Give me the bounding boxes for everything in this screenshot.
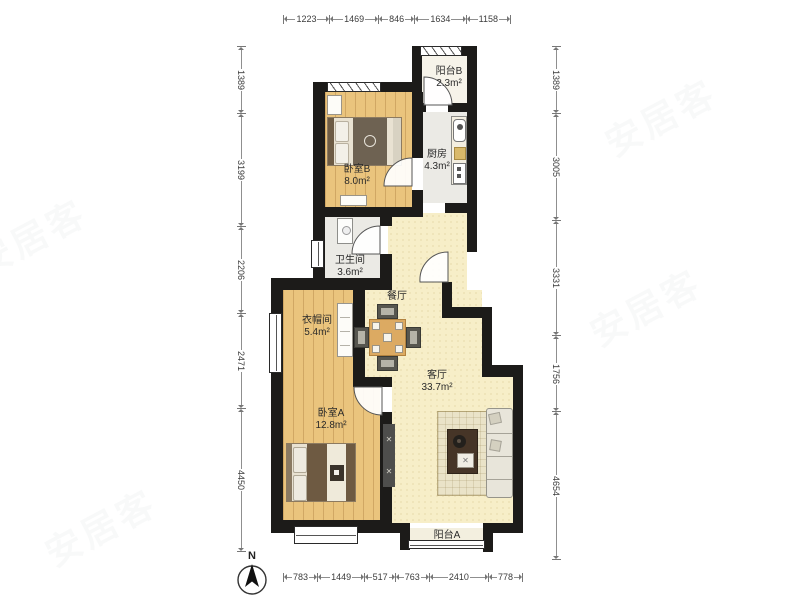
stove-burner bbox=[457, 167, 461, 171]
kitchen-stove bbox=[453, 163, 466, 184]
bathroom-basin bbox=[337, 218, 353, 244]
bed-pillow bbox=[293, 475, 307, 501]
watermark: 安居客 bbox=[595, 65, 725, 167]
bed-headboard bbox=[287, 444, 292, 501]
dimension-line bbox=[556, 224, 557, 267]
dimension-tick bbox=[510, 15, 511, 24]
bedroom-b-bed bbox=[327, 117, 402, 166]
dimension-value: 2410 bbox=[448, 572, 470, 582]
dimension-line bbox=[556, 50, 557, 69]
wall bbox=[467, 112, 477, 213]
closet-label: 衣帽间 5.4m² bbox=[302, 315, 332, 339]
room-name: 餐厅 bbox=[387, 291, 407, 303]
dimension-value: 517 bbox=[372, 572, 389, 582]
dimension-value: 2206 bbox=[236, 259, 246, 281]
dimension-value: 1158 bbox=[478, 14, 499, 24]
basin-bowl bbox=[342, 226, 351, 235]
north-arrow-icon bbox=[232, 560, 272, 600]
bedroom-b-nightstand bbox=[327, 95, 342, 115]
kitchen-appliance bbox=[454, 147, 466, 160]
room-name: 卧室A bbox=[315, 408, 346, 420]
dimension-value: 1634 bbox=[429, 14, 451, 24]
kitchen-counter bbox=[451, 116, 467, 185]
dimension-segment: 3331 bbox=[549, 221, 563, 335]
room-area: 4.3m² bbox=[424, 161, 450, 173]
bedroom-a-bay-window bbox=[294, 526, 358, 544]
dimension-column-right: 13893005333117564654 bbox=[549, 46, 563, 560]
kitchen-label: 厨房 4.3m² bbox=[424, 149, 450, 173]
room-area: 33.7m² bbox=[421, 382, 452, 394]
dimension-tick bbox=[237, 551, 246, 552]
dimension-line bbox=[556, 91, 557, 110]
dimension-segment: 763 bbox=[396, 570, 429, 584]
dimension-line bbox=[317, 19, 325, 20]
room-name: 阳台A bbox=[434, 530, 461, 542]
dimension-segment: 783 bbox=[284, 570, 317, 584]
blanket-ornament bbox=[364, 135, 376, 147]
room-area: 2.3m² bbox=[436, 78, 463, 90]
bed-blanket bbox=[307, 444, 327, 501]
bed-pillow bbox=[335, 143, 349, 164]
bed-blanket bbox=[353, 118, 387, 165]
dimension-value: 2471 bbox=[236, 350, 246, 372]
floorplan-canvas: 安居客 安居客 安居客 安居客 1223146984616341158 7831… bbox=[0, 0, 800, 600]
balcony-a-label: 阳台A bbox=[434, 530, 461, 542]
wall bbox=[353, 377, 392, 387]
wall bbox=[445, 203, 477, 213]
sofa-seam bbox=[487, 479, 512, 480]
room-name: 客厅 bbox=[421, 370, 452, 382]
wall bbox=[482, 318, 492, 367]
shelf-line bbox=[340, 317, 350, 318]
dimension-segment: 846 bbox=[379, 12, 414, 26]
table-tray: ✕ bbox=[457, 453, 474, 468]
shelf-line bbox=[340, 331, 350, 332]
wall bbox=[271, 387, 283, 533]
room-name: 衣帽间 bbox=[302, 315, 332, 327]
room-name: 厨房 bbox=[424, 149, 450, 161]
dining-chair bbox=[377, 304, 398, 319]
coffee-table: ✕ bbox=[447, 429, 478, 474]
dimension-value: 1449 bbox=[330, 572, 352, 582]
bedroom-b-window bbox=[327, 82, 381, 92]
sofa-seam bbox=[487, 456, 512, 457]
centerpiece bbox=[383, 333, 392, 342]
kitchen-sink bbox=[453, 119, 466, 142]
plant-center bbox=[457, 439, 461, 443]
place-setting bbox=[372, 345, 380, 353]
dimension-line bbox=[433, 577, 448, 578]
dimension-line bbox=[470, 19, 478, 20]
dimension-line bbox=[556, 339, 557, 363]
dimension-value: 3005 bbox=[551, 156, 561, 178]
dining-chair bbox=[406, 327, 421, 348]
room-name: 卫生间 bbox=[335, 255, 365, 267]
dimension-line bbox=[418, 19, 429, 20]
dimension-segment: 1223 bbox=[284, 12, 329, 26]
room-area: 5.4m² bbox=[302, 327, 332, 339]
sofa-pillow bbox=[489, 439, 502, 452]
sofa-seam bbox=[487, 433, 512, 434]
place-setting bbox=[395, 322, 403, 330]
watermark: 安居客 bbox=[580, 255, 710, 357]
dimension-segment: 1389 bbox=[234, 47, 248, 113]
room-name: 阳台B bbox=[436, 66, 463, 78]
dimension-line bbox=[556, 117, 557, 156]
place-setting bbox=[395, 345, 403, 353]
wall bbox=[448, 103, 477, 112]
dimension-segment: 1756 bbox=[549, 336, 563, 411]
dimension-segment: 778 bbox=[489, 570, 522, 584]
dimension-segment: 4654 bbox=[549, 412, 563, 559]
dimension-line bbox=[470, 577, 485, 578]
dimension-line bbox=[365, 19, 375, 20]
bed-foot bbox=[393, 118, 401, 165]
shelf-line bbox=[340, 345, 350, 346]
dimension-line bbox=[321, 577, 330, 578]
room-area: 8.0m² bbox=[344, 176, 371, 188]
watermark: 安居客 bbox=[0, 185, 95, 287]
dimension-line bbox=[241, 281, 242, 310]
dimension-row-top: 1223146984616341158 bbox=[283, 12, 511, 26]
dimension-segment: 1449 bbox=[318, 570, 364, 584]
dimension-line bbox=[241, 91, 242, 110]
sink-drain bbox=[457, 124, 463, 130]
dimension-value: 763 bbox=[404, 572, 421, 582]
sofa-pillow bbox=[488, 412, 502, 425]
closet-wardrobe bbox=[337, 303, 353, 357]
cabinet-x: ✕ bbox=[383, 467, 395, 476]
dimension-segment: 3005 bbox=[549, 114, 563, 220]
room-name: 卧室B bbox=[344, 164, 371, 176]
dimension-value: 783 bbox=[292, 572, 309, 582]
wall bbox=[442, 307, 492, 318]
dining-label: 餐厅 bbox=[387, 291, 407, 303]
room-area: 3.6m² bbox=[335, 267, 365, 279]
tv-cabinet: ✕ ✕ bbox=[383, 424, 395, 487]
wall bbox=[513, 367, 523, 533]
dimension-column-left: 13893199220624714450 bbox=[234, 46, 248, 552]
dimension-tick bbox=[552, 559, 561, 560]
dimension-line bbox=[241, 117, 242, 159]
dining-chair bbox=[354, 327, 369, 348]
balcony-b-window bbox=[420, 46, 462, 56]
dimension-line bbox=[241, 317, 242, 350]
dimension-line bbox=[451, 19, 462, 20]
bathroom-window bbox=[311, 240, 324, 268]
dimension-line bbox=[241, 491, 242, 548]
dimension-line bbox=[556, 289, 557, 332]
wall bbox=[412, 190, 423, 217]
dimension-row-bottom: 78314495177632410778 bbox=[283, 570, 523, 584]
dimension-segment: 517 bbox=[365, 570, 395, 584]
dimension-line bbox=[556, 497, 557, 556]
bedroom-b-label: 卧室B 8.0m² bbox=[344, 164, 371, 188]
dimension-segment: 3199 bbox=[234, 114, 248, 225]
bedroom-b-dresser bbox=[340, 195, 367, 206]
bathroom-label: 卫生间 3.6m² bbox=[335, 255, 365, 279]
sofa bbox=[486, 408, 513, 498]
dimension-segment: 1634 bbox=[415, 12, 466, 26]
dimension-line bbox=[241, 230, 242, 259]
dimension-line bbox=[241, 372, 242, 405]
dimension-segment: 2471 bbox=[234, 314, 248, 407]
wall bbox=[412, 92, 423, 158]
dining-chair bbox=[377, 356, 398, 371]
bed-pillow bbox=[335, 121, 349, 142]
stove-burner bbox=[457, 174, 461, 178]
dimension-line bbox=[556, 385, 557, 409]
bed-headboard bbox=[328, 118, 334, 165]
dimension-value: 3199 bbox=[236, 159, 246, 181]
room-area: 12.8m² bbox=[315, 420, 346, 432]
dimension-value: 4654 bbox=[551, 475, 561, 497]
dimension-line bbox=[499, 19, 507, 20]
dimension-line bbox=[241, 412, 242, 469]
dimension-value: 3331 bbox=[551, 267, 561, 289]
bedroom-a-label: 卧室A 12.8m² bbox=[315, 408, 346, 432]
place-setting bbox=[372, 322, 380, 330]
dimension-segment: 1158 bbox=[467, 12, 510, 26]
plant-icon bbox=[453, 435, 466, 448]
balcony-b-label: 阳台B 2.3m² bbox=[436, 66, 463, 90]
dimension-segment: 1389 bbox=[549, 47, 563, 113]
dimension-value: 1389 bbox=[551, 69, 561, 91]
wall bbox=[313, 82, 325, 217]
dimension-segment: 1469 bbox=[330, 12, 378, 26]
dimension-segment: 2410 bbox=[430, 570, 489, 584]
wall bbox=[271, 278, 392, 290]
wall bbox=[313, 207, 413, 217]
wall bbox=[467, 46, 477, 110]
dimension-line bbox=[241, 50, 242, 69]
dimension-value: 1223 bbox=[295, 14, 317, 24]
living-label: 客厅 33.7m² bbox=[421, 370, 452, 394]
dimension-segment: 4450 bbox=[234, 409, 248, 551]
wall bbox=[380, 217, 392, 226]
bedroom-a-bed bbox=[286, 443, 356, 502]
dimension-value: 846 bbox=[388, 14, 405, 24]
bed-pillow bbox=[293, 447, 307, 473]
bed-runner bbox=[327, 444, 348, 501]
dimension-tick bbox=[522, 573, 523, 582]
dining-table bbox=[369, 319, 406, 356]
dimension-value: 4450 bbox=[236, 469, 246, 491]
bed-tray bbox=[330, 465, 344, 481]
watermark: 安居客 bbox=[35, 475, 165, 577]
bed-blanket bbox=[346, 444, 355, 501]
dimension-line bbox=[556, 415, 557, 474]
cabinet-x: ✕ bbox=[383, 435, 395, 444]
wall bbox=[467, 213, 477, 252]
tray-item bbox=[334, 470, 339, 475]
dimension-value: 778 bbox=[497, 572, 514, 582]
dimension-line bbox=[333, 19, 343, 20]
dimension-line bbox=[556, 178, 557, 217]
dimension-segment: 2206 bbox=[234, 227, 248, 314]
dimension-line bbox=[287, 19, 295, 20]
closet-window bbox=[269, 313, 282, 373]
dimension-value: 1756 bbox=[551, 363, 561, 385]
dimension-value: 1389 bbox=[236, 69, 246, 91]
dimension-value: 1469 bbox=[343, 14, 365, 24]
dimension-line bbox=[352, 577, 361, 578]
dimension-line bbox=[241, 181, 242, 223]
